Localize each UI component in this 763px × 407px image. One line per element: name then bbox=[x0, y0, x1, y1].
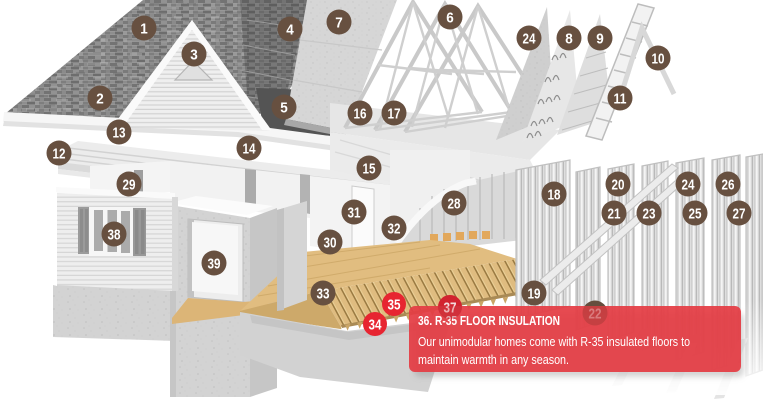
svg-text:24: 24 bbox=[523, 31, 537, 48]
svg-text:38: 38 bbox=[108, 227, 121, 244]
svg-text:21: 21 bbox=[608, 206, 621, 223]
svg-text:13: 13 bbox=[113, 125, 126, 142]
svg-text:29: 29 bbox=[123, 177, 136, 194]
svg-text:9: 9 bbox=[596, 31, 604, 48]
svg-text:1: 1 bbox=[140, 21, 148, 38]
svg-text:36. R-35 FLOOR INSULATION: 36. R-35 FLOOR INSULATION bbox=[418, 313, 560, 328]
svg-text:35: 35 bbox=[388, 297, 401, 314]
svg-text:25: 25 bbox=[689, 206, 702, 223]
svg-text:37: 37 bbox=[444, 300, 457, 317]
svg-text:12: 12 bbox=[53, 146, 66, 163]
svg-text:39: 39 bbox=[208, 256, 221, 273]
svg-text:22: 22 bbox=[589, 306, 602, 323]
svg-text:27: 27 bbox=[733, 206, 746, 223]
svg-text:23: 23 bbox=[643, 206, 656, 223]
svg-text:28: 28 bbox=[448, 196, 461, 213]
svg-text:10: 10 bbox=[652, 51, 665, 68]
svg-text:14: 14 bbox=[243, 141, 257, 158]
svg-text:3: 3 bbox=[190, 47, 198, 64]
svg-text:34: 34 bbox=[369, 317, 383, 334]
svg-text:33: 33 bbox=[317, 286, 330, 303]
svg-text:7: 7 bbox=[335, 15, 343, 32]
svg-text:Our unimodular homes come with: Our unimodular homes come with R-35 insu… bbox=[418, 334, 690, 349]
svg-text:24: 24 bbox=[682, 177, 696, 194]
svg-text:17: 17 bbox=[388, 106, 401, 123]
svg-text:19: 19 bbox=[528, 286, 541, 303]
svg-text:32: 32 bbox=[388, 221, 401, 238]
svg-text:maintain warmth in any season.: maintain warmth in any season. bbox=[418, 352, 569, 367]
svg-text:5: 5 bbox=[280, 100, 288, 117]
svg-text:20: 20 bbox=[612, 177, 625, 194]
svg-text:4: 4 bbox=[286, 22, 294, 39]
svg-text:30: 30 bbox=[324, 235, 337, 252]
svg-text:8: 8 bbox=[565, 31, 573, 48]
svg-text:11: 11 bbox=[614, 91, 627, 108]
svg-text:31: 31 bbox=[348, 205, 361, 222]
svg-text:15: 15 bbox=[363, 161, 376, 178]
svg-text:18: 18 bbox=[548, 187, 561, 204]
svg-text:2: 2 bbox=[96, 91, 104, 108]
svg-text:26: 26 bbox=[722, 177, 735, 194]
svg-text:16: 16 bbox=[354, 106, 367, 123]
svg-text:6: 6 bbox=[446, 10, 454, 27]
